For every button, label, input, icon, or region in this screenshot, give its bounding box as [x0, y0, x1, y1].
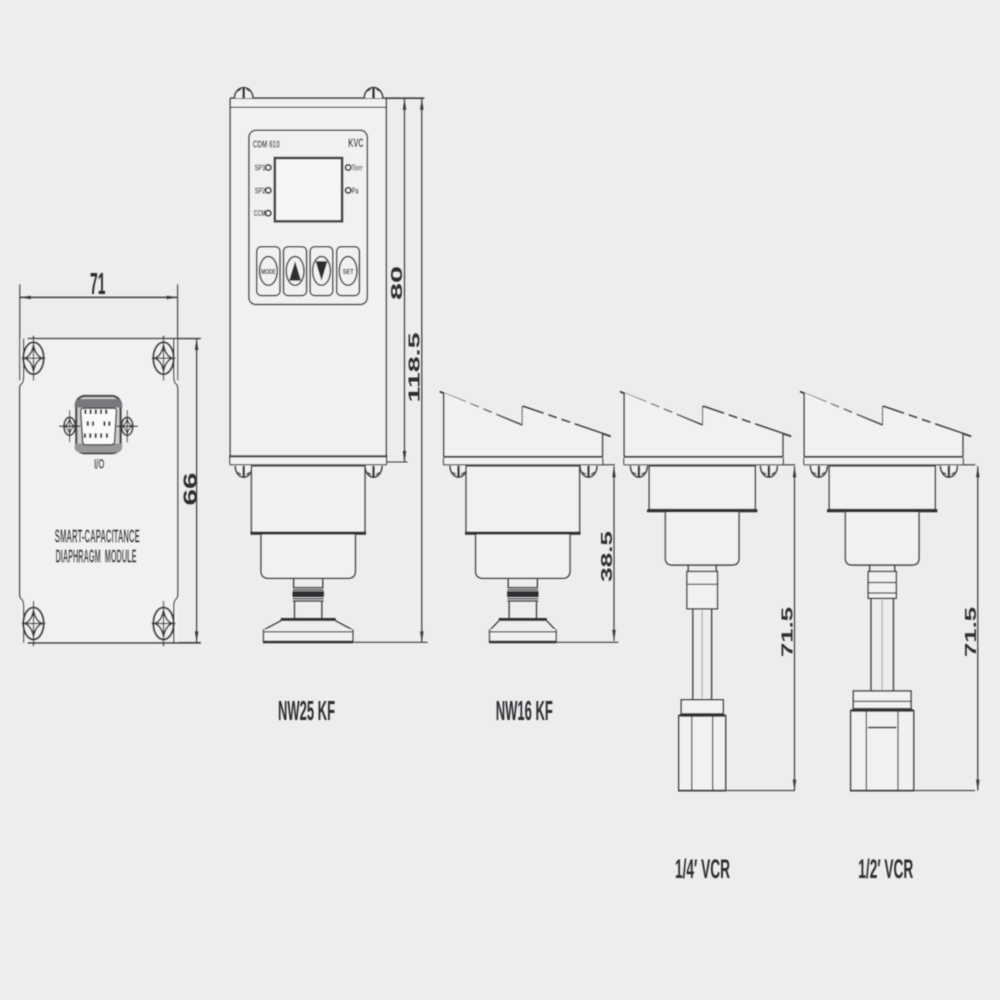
svg-text:SMART-CAPACITANCE: SMART-CAPACITANCE — [55, 526, 140, 546]
svg-text:66: 66 — [180, 473, 200, 506]
svg-text:38.5: 38.5 — [599, 531, 616, 582]
svg-text:SP2: SP2 — [255, 186, 266, 195]
svg-text:NW16 KF: NW16 KF — [496, 695, 553, 726]
svg-text:Pa: Pa — [352, 186, 359, 195]
svg-text:118.5: 118.5 — [407, 332, 424, 402]
svg-text:71.5: 71.5 — [780, 607, 797, 657]
svg-text:MODE: MODE — [261, 269, 276, 276]
svg-text:CDM 610: CDM 610 — [253, 139, 280, 150]
svg-text:SET: SET — [343, 267, 354, 276]
svg-text:1/2′ VCR: 1/2′ VCR — [858, 854, 913, 884]
svg-text:80: 80 — [389, 266, 406, 300]
svg-text:71.5: 71.5 — [963, 607, 980, 657]
svg-text:Torr: Torr — [352, 163, 363, 172]
svg-text:SP1: SP1 — [255, 163, 266, 172]
svg-text:DIAPHRAGM MODULE: DIAPHRAGM MODULE — [56, 546, 137, 566]
svg-text:71: 71 — [90, 266, 106, 301]
svg-text:NW25 KF: NW25 KF — [278, 695, 335, 726]
svg-text:KVC: KVC — [348, 138, 364, 150]
svg-text:CCM: CCM — [254, 209, 266, 218]
svg-text:1/4′ VCR: 1/4′ VCR — [675, 854, 730, 884]
svg-text:I/O: I/O — [94, 456, 105, 471]
